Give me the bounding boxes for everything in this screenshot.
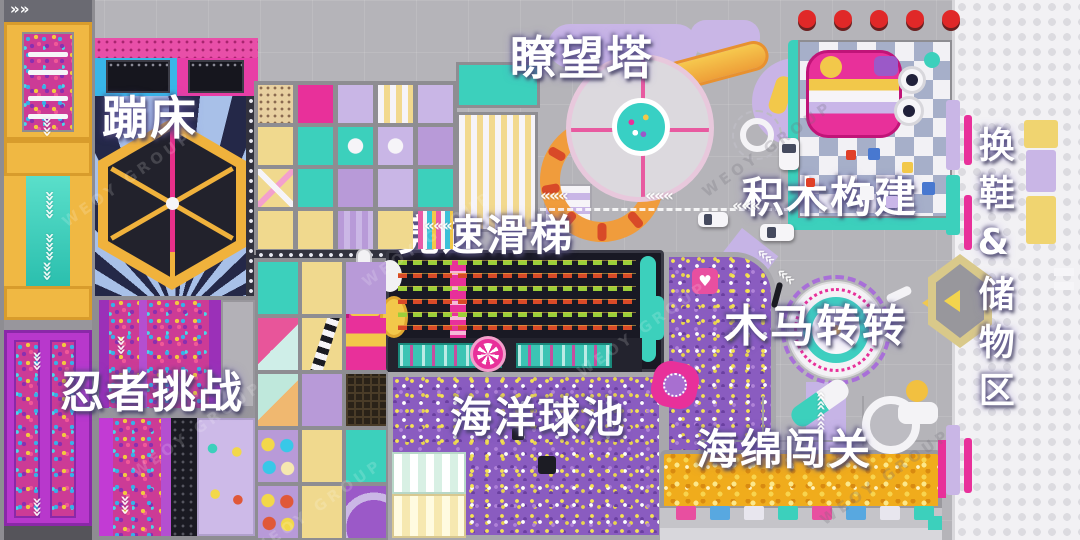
left-climb-bottom-wall xyxy=(4,526,92,540)
toy-car xyxy=(760,224,794,241)
road-chevron-icon: ««« xyxy=(732,196,759,216)
double-arrow-icon: »» xyxy=(10,0,29,18)
red-ball-seat xyxy=(870,10,888,28)
grid-cell xyxy=(258,262,298,314)
grid-cell xyxy=(346,486,386,538)
playground-floor-plan: ♥ 蹦床 瞭望塔 竞速滑梯 积木构建 木马转转 xyxy=(0,0,1080,540)
zone-label-sponge-course: 海绵闯关 xyxy=(696,428,872,472)
zone-label-ocean-ball-pit: 海洋球池 xyxy=(450,396,626,440)
toy-block xyxy=(868,148,880,160)
ninja-purple-rail xyxy=(161,418,171,536)
grid-cell xyxy=(258,318,298,370)
toy-block xyxy=(902,162,913,173)
pit-step-panel-yellow xyxy=(392,494,466,538)
grid-cell xyxy=(258,85,293,123)
tower-cabin xyxy=(612,98,670,156)
spiral-slide-red-dash xyxy=(598,223,607,241)
grid-cell xyxy=(298,211,333,249)
grid-cell xyxy=(302,374,342,426)
road-chevron-icon: «« xyxy=(37,119,57,137)
road-chevron-icon: ««« xyxy=(540,186,567,206)
teal-knob xyxy=(924,52,940,68)
toy-block xyxy=(860,186,874,200)
ladder-bar xyxy=(28,96,68,101)
sponge-front-block xyxy=(914,506,934,520)
grid-cell xyxy=(258,169,293,207)
ninja-dotted-wall xyxy=(197,418,255,536)
storage-locker-tab xyxy=(964,438,972,493)
bench-white xyxy=(1054,282,1074,290)
zone-label-shoe-storage: 换鞋&储物区 xyxy=(974,126,1012,540)
toy-yellow-knob xyxy=(820,56,842,78)
ladder-bar xyxy=(28,70,68,75)
racing-lane-stripe xyxy=(398,273,636,278)
grid-cell xyxy=(298,127,333,165)
trampoline-top-wall xyxy=(95,38,258,58)
ninja-magenta-panel xyxy=(99,418,113,536)
storage-locker-tab xyxy=(964,195,972,250)
left-climb-yellow-side xyxy=(4,176,26,286)
bench-white xyxy=(1054,268,1074,276)
grid-cell xyxy=(346,318,386,370)
racing-lane-stripe xyxy=(398,260,636,265)
toy-block xyxy=(806,178,815,187)
yellow-ball-toy xyxy=(906,380,928,402)
stool-top xyxy=(903,105,915,117)
bench-yellow xyxy=(1026,196,1056,244)
storage-locker-tab xyxy=(964,115,972,165)
stool-top xyxy=(906,74,918,86)
road-chevron-icon: ««« xyxy=(645,186,672,206)
toy-block xyxy=(886,196,898,208)
pit-flower-center xyxy=(663,373,687,397)
trampoline-hub xyxy=(166,197,179,210)
toy-purple-corner xyxy=(874,56,898,76)
grid-cell xyxy=(418,85,453,123)
sponge-base xyxy=(660,528,942,540)
road-chevron-icon: ««« xyxy=(39,193,59,220)
racing-lane-stripe xyxy=(398,286,636,291)
zone-label-carousel: 木马转转 xyxy=(724,304,908,350)
fan-wheel-blades xyxy=(477,343,499,365)
road-chevron-icon: «« xyxy=(811,391,831,409)
grid-cell xyxy=(302,262,342,314)
grid-cell xyxy=(338,127,373,165)
sponge-front-block xyxy=(744,506,764,520)
road-chevron-icon: ««« xyxy=(39,235,59,262)
sponge-front-block xyxy=(710,506,730,520)
grid-cell xyxy=(302,318,342,370)
grid-cell xyxy=(298,169,333,207)
grid-cell xyxy=(258,211,293,249)
left-climb-divider xyxy=(4,320,92,330)
toy-base-white xyxy=(898,402,938,424)
ladder-bar xyxy=(28,52,68,57)
left-climb-step xyxy=(4,286,92,320)
bench-yellow xyxy=(1024,120,1058,148)
trampoline-spoke-tip xyxy=(170,252,175,284)
trampoline-screen xyxy=(188,60,244,93)
racing-lane-stripe xyxy=(398,325,636,330)
storage-locker-tab xyxy=(946,175,960,235)
road-chevron-icon: «« xyxy=(37,263,57,281)
trampoline-screen xyxy=(106,60,170,93)
red-ball-seat xyxy=(906,10,924,28)
road-chevron-icon: «« xyxy=(111,337,131,355)
sponge-front-block xyxy=(880,506,900,520)
pit-step-panel-mint xyxy=(392,452,466,494)
left-climb-step xyxy=(4,140,92,176)
toy-car xyxy=(698,212,728,227)
grid-cell xyxy=(258,374,298,426)
grid-cell xyxy=(338,169,373,207)
bench-lavender xyxy=(1026,150,1056,192)
grid-cell xyxy=(258,127,293,165)
road-chevron-icon: «« xyxy=(27,353,47,371)
grid-cell xyxy=(346,374,386,426)
road-chevron-icon: «« xyxy=(811,411,831,429)
road-chevron-icon: «« xyxy=(27,499,47,517)
grid-cell xyxy=(418,127,453,165)
grid-cell xyxy=(338,211,373,249)
red-ball-seat xyxy=(798,10,816,28)
grid-cell xyxy=(298,85,333,123)
racing-lane-stripe xyxy=(398,312,636,317)
pit-dark-block xyxy=(538,456,556,474)
grid-cell xyxy=(258,430,298,482)
red-ball-seat xyxy=(834,10,852,28)
grid-cell xyxy=(418,169,453,207)
grid-cell xyxy=(338,85,373,123)
racing-lane-stripe xyxy=(398,299,636,304)
left-climb-yellow-side xyxy=(70,176,92,286)
grid-cell xyxy=(378,169,413,207)
sponge-front-block xyxy=(778,506,798,520)
grid-cell xyxy=(378,85,413,123)
grid-cell xyxy=(378,127,413,165)
toy-block xyxy=(922,182,935,195)
road-chevron-icon: «« xyxy=(115,497,135,515)
toy-block xyxy=(846,150,856,160)
sponge-front-block xyxy=(676,506,696,520)
storage-locker-tab xyxy=(946,100,960,170)
grid-cell xyxy=(302,430,342,482)
zone-label-watchtower: 瞭望塔 xyxy=(510,34,654,82)
red-ball-seat xyxy=(942,10,960,28)
